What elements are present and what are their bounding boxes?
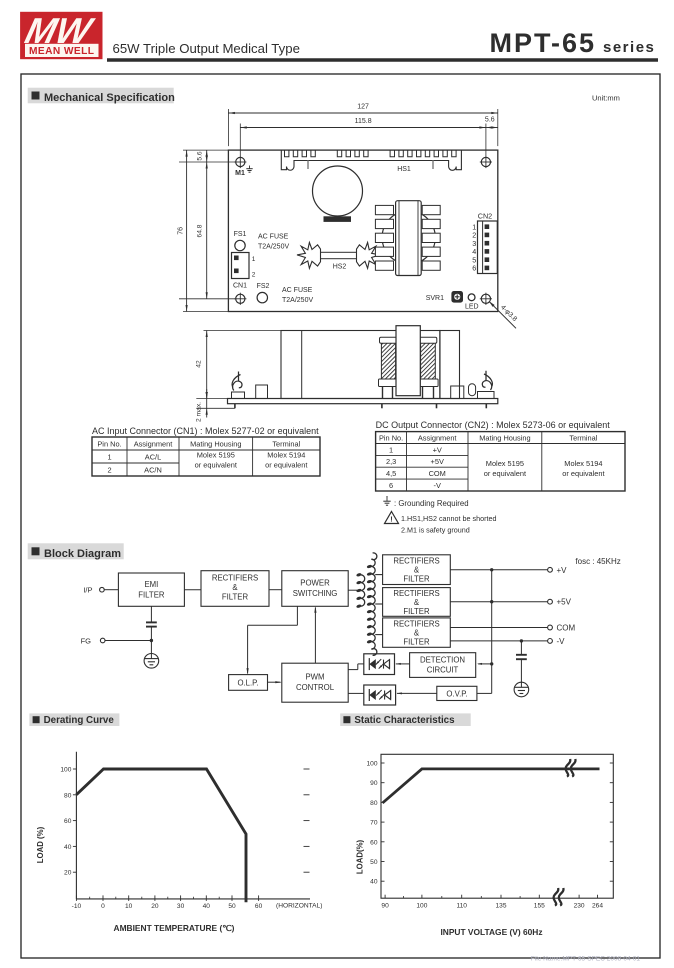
svg-text:HS1: HS1: [397, 166, 411, 173]
svg-text:Mating Housing: Mating Housing: [190, 440, 241, 449]
svg-text:Terminal: Terminal: [569, 433, 597, 442]
svg-text:AC/N: AC/N: [144, 466, 162, 475]
svg-text:FG: FG: [81, 637, 92, 646]
svg-text:LOAD(%): LOAD(%): [356, 839, 365, 874]
svg-text:1: 1: [389, 445, 393, 454]
svg-text:90: 90: [370, 780, 378, 787]
svg-text:T2A/250V: T2A/250V: [282, 297, 313, 304]
svg-text:FILTER: FILTER: [222, 593, 249, 602]
svg-text:FILTER: FILTER: [403, 575, 430, 584]
svg-text:60: 60: [370, 839, 378, 846]
svg-text:or equivalent: or equivalent: [484, 469, 526, 478]
svg-text:Terminal: Terminal: [272, 440, 300, 449]
svg-text:Mechanical Specification: Mechanical Specification: [44, 92, 175, 104]
svg-text:Pin No.: Pin No.: [97, 440, 121, 449]
svg-text:File Name:MPT-65-SPEC 2008-0: File Name:MPT-65-SPEC 2008-04-01: [531, 956, 640, 963]
svg-text:60: 60: [64, 818, 72, 825]
svg-text:50: 50: [228, 903, 236, 910]
svg-text:-V: -V: [434, 481, 441, 490]
svg-text:264: 264: [592, 903, 603, 910]
svg-text:1: 1: [107, 453, 111, 462]
svg-text:POWER: POWER: [300, 579, 330, 588]
svg-text:or equivalent: or equivalent: [195, 461, 237, 470]
svg-text:FILTER: FILTER: [403, 607, 430, 616]
svg-text:4-φ3.8: 4-φ3.8: [499, 304, 518, 323]
svg-text:4,5: 4,5: [386, 469, 396, 478]
svg-text:: Grounding Required: : Grounding Required: [394, 499, 469, 508]
svg-text:Molex 5194: Molex 5194: [564, 459, 602, 468]
svg-text:MPT-65: MPT-65: [489, 28, 596, 58]
svg-text:LOAD (%): LOAD (%): [36, 826, 45, 863]
svg-text:&: &: [414, 598, 420, 607]
svg-text:RECTIFIERS: RECTIFIERS: [393, 589, 439, 598]
svg-text:Unit:mm: Unit:mm: [592, 94, 620, 103]
svg-text:40: 40: [64, 844, 72, 851]
svg-text:5.6: 5.6: [485, 117, 495, 124]
svg-text:+5V: +5V: [557, 598, 572, 607]
svg-text:FILTER: FILTER: [403, 638, 430, 647]
svg-text:AC FUSE: AC FUSE: [282, 287, 313, 294]
svg-text:MEAN WELL: MEAN WELL: [29, 46, 94, 57]
svg-text:100: 100: [366, 761, 377, 768]
svg-text:110: 110: [456, 903, 467, 910]
svg-text:127: 127: [357, 104, 369, 111]
svg-text:FILTER: FILTER: [138, 591, 165, 600]
svg-text:Assignment: Assignment: [134, 440, 173, 449]
svg-text:100: 100: [416, 903, 427, 910]
svg-text:SVR1: SVR1: [426, 295, 444, 302]
svg-text:70: 70: [370, 820, 378, 827]
svg-text:10: 10: [125, 903, 133, 910]
svg-text:SWITCHING: SWITCHING: [293, 589, 338, 598]
svg-text:AC/L: AC/L: [145, 453, 161, 462]
svg-text:AC FUSE: AC FUSE: [258, 234, 289, 241]
svg-text:76: 76: [178, 227, 185, 235]
svg-text:M1: M1: [235, 170, 245, 177]
svg-text:DC Output Connector (CN2) : Mo: DC Output Connector (CN2) : Molex 5273-0…: [376, 420, 611, 430]
svg-text:80: 80: [64, 792, 72, 799]
svg-text:+V: +V: [557, 566, 568, 575]
svg-text:RECTIFIERS: RECTIFIERS: [212, 574, 258, 583]
svg-text:65W Triple Output Medical Type: 65W Triple Output Medical Type: [113, 41, 300, 56]
svg-text:O.V.P.: O.V.P.: [446, 689, 467, 698]
svg-text:+5V: +5V: [431, 457, 444, 466]
svg-text:AC Input Connector (CN1) : Mol: AC Input Connector (CN1) : Molex 5277-02…: [92, 426, 319, 436]
svg-text:T2A/250V: T2A/250V: [258, 244, 289, 251]
svg-text:series: series: [603, 39, 655, 56]
svg-text:INPUT VOLTAGE (V) 60Hz: INPUT VOLTAGE (V) 60Hz: [440, 927, 542, 937]
svg-text:&: &: [232, 583, 238, 592]
svg-text:2,3: 2,3: [386, 457, 396, 466]
svg-text:90: 90: [381, 903, 389, 910]
svg-text:COM: COM: [557, 624, 576, 633]
svg-text:Molex 5195: Molex 5195: [197, 451, 235, 460]
svg-text:1: 1: [252, 256, 256, 263]
svg-text:CN2: CN2: [478, 212, 492, 221]
svg-text:1.HS1,HS2 cannot be shorted: 1.HS1,HS2 cannot be shorted: [401, 514, 497, 523]
svg-text:40: 40: [370, 879, 378, 886]
svg-text:COM: COM: [429, 469, 446, 478]
svg-text:+V: +V: [433, 445, 442, 454]
svg-text:FS1: FS1: [234, 231, 247, 238]
svg-text:5.6: 5.6: [197, 151, 204, 161]
svg-text:&: &: [414, 629, 420, 638]
svg-text:-10: -10: [72, 903, 82, 910]
svg-text:FS2: FS2: [257, 283, 270, 290]
svg-text:230: 230: [574, 903, 585, 910]
svg-text:50: 50: [370, 859, 378, 866]
svg-text:Derating Curve: Derating Curve: [44, 715, 115, 726]
svg-text:0: 0: [101, 903, 105, 910]
svg-text:115.8: 115.8: [355, 118, 372, 125]
svg-text:135: 135: [495, 903, 506, 910]
svg-text:I/P: I/P: [83, 586, 92, 595]
svg-text:Assignment: Assignment: [418, 433, 457, 442]
svg-text:40: 40: [203, 903, 211, 910]
svg-text:Molex 5195: Molex 5195: [486, 459, 524, 468]
svg-text:Molex 5194: Molex 5194: [267, 451, 305, 460]
svg-text:20: 20: [64, 870, 72, 877]
svg-text:-V: -V: [557, 637, 566, 646]
svg-text:Mating Housing: Mating Housing: [479, 433, 530, 442]
svg-text:CN1: CN1: [233, 283, 247, 290]
svg-text:Block Diagram: Block Diagram: [44, 548, 121, 560]
svg-text:Static Characteristics: Static Characteristics: [354, 715, 455, 726]
svg-text:AMBIENT TEMPERATURE (℃): AMBIENT TEMPERATURE (℃): [114, 923, 235, 933]
svg-text:HS2: HS2: [333, 264, 347, 271]
svg-text:2: 2: [252, 272, 256, 279]
svg-text:155: 155: [534, 903, 545, 910]
svg-text:2: 2: [107, 466, 111, 475]
svg-text:PWM: PWM: [305, 673, 324, 682]
svg-text:2.M1 is safety ground: 2.M1 is safety ground: [401, 526, 470, 535]
svg-text:42: 42: [196, 360, 203, 368]
svg-text:6: 6: [389, 481, 393, 490]
svg-text:O.L.P.: O.L.P.: [237, 679, 258, 688]
svg-text:RECTIFIERS: RECTIFIERS: [393, 557, 439, 566]
svg-text:80: 80: [370, 800, 378, 807]
svg-text:30: 30: [177, 903, 185, 910]
svg-text:CONTROL: CONTROL: [296, 683, 335, 692]
svg-text:64.8: 64.8: [197, 224, 204, 237]
svg-text:(HORIZONTAL): (HORIZONTAL): [276, 903, 322, 910]
svg-text:RECTIFIERS: RECTIFIERS: [393, 620, 439, 629]
svg-text:or equivalent: or equivalent: [265, 461, 307, 470]
svg-text:20: 20: [151, 903, 159, 910]
svg-text:or equivalent: or equivalent: [562, 469, 604, 478]
svg-text:100: 100: [60, 767, 71, 774]
svg-text:&: &: [414, 566, 420, 575]
svg-text:fosc : 45KHz: fosc : 45KHz: [575, 557, 620, 566]
svg-text:2 max.: 2 max.: [196, 402, 203, 422]
svg-text:!: !: [390, 515, 393, 524]
svg-text:LED: LED: [465, 304, 479, 311]
svg-text:60: 60: [255, 903, 263, 910]
svg-text:6: 6: [472, 264, 476, 273]
svg-text:CIRCUIT: CIRCUIT: [427, 666, 459, 675]
svg-text:EMI: EMI: [144, 580, 158, 589]
svg-text:Pin No.: Pin No.: [379, 433, 403, 442]
svg-text:DETECTION: DETECTION: [420, 656, 465, 665]
